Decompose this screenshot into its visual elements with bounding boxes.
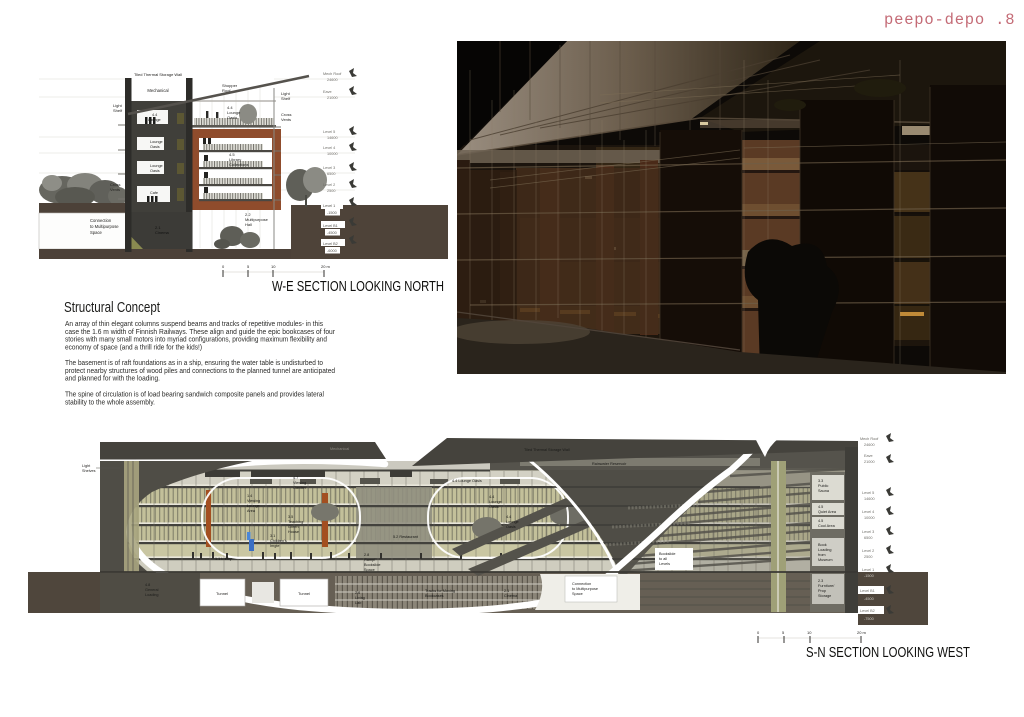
svg-text:-1500: -1500 (864, 574, 874, 578)
svg-text:2500: 2500 (864, 555, 872, 559)
svg-text:Garden: Garden (293, 486, 306, 490)
svg-text:-1500: -1500 (327, 211, 337, 215)
svg-text:10: 10 (271, 264, 276, 269)
svg-text:Cinema: Cinema (504, 594, 518, 598)
svg-text:Tunnel: Tunnel (216, 591, 228, 596)
svg-text:Connection: Connection (90, 218, 112, 223)
svg-text:Vents: Vents (281, 117, 291, 122)
svg-text:Lounge: Lounge (489, 500, 502, 504)
svg-text:Viewing: Viewing (247, 499, 260, 503)
svg-text:Connection: Connection (572, 582, 591, 586)
svg-text:4.8: 4.8 (145, 583, 150, 587)
svg-text:Collections: Collections (229, 162, 249, 167)
svg-text:Bookslide: Bookslide (659, 552, 675, 556)
svg-text:21000: 21000 (864, 460, 875, 464)
svg-text:Level 4: Level 4 (323, 146, 335, 150)
svg-text:Level B1: Level B1 (860, 589, 875, 593)
svg-text:0: 0 (757, 630, 760, 635)
svg-text:Level B2: Level B2 (860, 609, 875, 613)
svg-text:10000: 10000 (327, 152, 338, 156)
svg-text:to all: to all (659, 557, 667, 561)
svg-text:Loading: Loading (145, 593, 159, 597)
svg-text:Level 3: Level 3 (862, 530, 874, 534)
svg-text:Area: Area (247, 509, 256, 513)
svg-text:2500: 2500 (327, 189, 335, 193)
svg-text:peepo-depo .8: peepo-depo .8 (884, 11, 1015, 29)
svg-text:Cool Area: Cool Area (818, 524, 836, 528)
svg-text:5: 5 (782, 630, 785, 635)
svg-text:-4500: -4500 (327, 231, 337, 235)
svg-text:Level 4: Level 4 (862, 510, 874, 514)
svg-text:4.7: 4.7 (293, 476, 298, 480)
svg-text:Oasis: Oasis (227, 115, 237, 120)
svg-text:2.1: 2.1 (504, 589, 509, 593)
svg-text:Lounge: Lounge (506, 520, 519, 524)
svg-text:and planned for with the loadi: and planned for with the loading. (65, 376, 160, 383)
svg-text:Level 1: Level 1 (862, 568, 874, 572)
svg-text:4.4: 4.4 (152, 113, 157, 117)
svg-text:stability to the whole assembl: stability to the whole assembly. (65, 399, 155, 406)
svg-text:Teaching: Teaching (288, 520, 303, 524)
svg-text:4.5: 4.5 (818, 519, 823, 523)
svg-text:Ramp/: Ramp/ (364, 558, 376, 562)
svg-text:Structural Concept: Structural Concept (64, 299, 161, 316)
svg-text:0: 0 (222, 264, 225, 269)
svg-text:4.4: 4.4 (506, 515, 511, 519)
svg-text:Tunnel: Tunnel (298, 591, 310, 596)
svg-text:Quiet Area: Quiet Area (818, 510, 837, 514)
svg-text:to Multipurpose: to Multipurpose (90, 224, 119, 229)
svg-text:10000: 10000 (864, 516, 875, 520)
svg-text:Shelf: Shelf (281, 96, 291, 101)
svg-text:Oasis: Oasis (506, 525, 516, 529)
svg-text:24600: 24600 (864, 443, 875, 447)
svg-text:2.3: 2.3 (818, 579, 823, 583)
svg-text:Shelf: Shelf (113, 108, 123, 113)
svg-text:Tiled Thermal Storage Wall: Tiled Thermal Storage Wall (524, 448, 570, 452)
svg-text:Book: Book (818, 543, 827, 547)
svg-text:Level 3: Level 3 (323, 166, 335, 170)
svg-text:Vents: Vents (110, 187, 120, 192)
svg-text:2.6: 2.6 (355, 591, 360, 595)
svg-text:10: 10 (807, 630, 812, 635)
svg-text:Light: Light (82, 464, 91, 468)
svg-text:Oasis: Oasis (150, 145, 160, 149)
svg-text:Viewing: Viewing (293, 481, 306, 485)
svg-text:Level 5: Level 5 (862, 491, 874, 495)
svg-text:Space: Space (572, 592, 583, 596)
svg-text:Level 5: Level 5 (323, 130, 335, 134)
svg-text:6500: 6500 (864, 536, 872, 540)
svg-text:economy of space (and a thrill: economy of space (and a thrill ride for … (65, 344, 202, 351)
svg-text:case the 1.6 m width of Finnis: case the 1.6 m width of Finnish Railways… (65, 329, 336, 336)
svg-text:Furniture/: Furniture/ (818, 584, 835, 588)
svg-text:Loading: Loading (818, 548, 832, 552)
svg-text:Space: Space (90, 230, 103, 235)
svg-text:from: from (818, 553, 826, 557)
svg-text:Mechanical: Mechanical (330, 447, 349, 451)
svg-text:Level 1: Level 1 (323, 204, 335, 208)
svg-text:Public: Public (818, 484, 828, 488)
svg-text:Mechanical: Mechanical (147, 88, 168, 93)
svg-text:Living: Living (355, 596, 365, 600)
svg-text:Roof: Roof (222, 88, 231, 93)
svg-text:Space: Space (364, 568, 375, 572)
svg-text:Shelves: Shelves (82, 469, 96, 473)
svg-text:21000: 21000 (327, 96, 338, 100)
svg-text:Bookslide: Bookslide (364, 563, 380, 567)
svg-text:Mech Roof: Mech Roof (860, 437, 879, 441)
svg-text:Children's: Children's (270, 539, 287, 543)
svg-text:-4500: -4500 (864, 597, 874, 601)
svg-text:4.5: 4.5 (818, 505, 823, 509)
svg-text:Lounge: Lounge (150, 140, 163, 144)
svg-text:protect nearby structures of w: protect nearby structures of wood piles … (65, 368, 335, 375)
svg-text:Level B2: Level B2 (323, 242, 338, 246)
svg-text:Sauna: Sauna (818, 489, 830, 493)
svg-text:Cinema: Cinema (155, 230, 170, 235)
svg-text:House: House (288, 530, 299, 534)
svg-text:Lounge: Lounge (150, 164, 163, 168)
svg-text:S-N SECTION LOOKING WEST: S-N SECTION LOOKING WEST (806, 645, 970, 661)
svg-text:Storage: Storage (818, 594, 831, 598)
svg-text:14600: 14600 (327, 136, 338, 140)
svg-text:W-E SECTION LOOKING NORTH: W-E SECTION LOOKING NORTH (272, 279, 444, 295)
svg-text:3.1: 3.1 (270, 534, 275, 538)
svg-text:Mech Roof: Mech Roof (323, 72, 342, 76)
svg-text:Rainwater Reservoir: Rainwater Reservoir (592, 462, 627, 466)
svg-text:Bookcases: Bookcases (425, 594, 444, 598)
svg-text:The spine of circulation is of: The spine of circulation is of load bear… (65, 392, 324, 399)
svg-text:2.8: 2.8 (364, 553, 369, 557)
svg-text:6500: 6500 (327, 172, 335, 176)
svg-text:Levels: Levels (659, 562, 670, 566)
svg-text:Level 2: Level 2 (862, 549, 874, 553)
svg-text:General: General (145, 588, 159, 592)
svg-text:5: 5 (247, 264, 250, 269)
svg-text:4.4 Lounge Oasis: 4.4 Lounge Oasis (452, 479, 482, 483)
svg-text:-7500: -7500 (864, 617, 874, 621)
svg-text:4.4: 4.4 (489, 495, 494, 499)
svg-text:20 m: 20 m (321, 264, 331, 269)
svg-text:Oasis: Oasis (150, 169, 160, 173)
svg-text:Green: Green (288, 525, 299, 529)
svg-text:The basement is of raft founda: The basement is of raft foundations as i… (65, 360, 323, 367)
svg-text:Lounge: Lounge (247, 504, 260, 508)
svg-text:-6000: -6000 (327, 249, 337, 253)
svg-text:Cafe: Cafe (150, 191, 158, 195)
svg-text:1.1 Lobby: 1.1 Lobby (215, 557, 232, 561)
svg-text:20 m: 20 m (857, 630, 867, 635)
svg-text:24600: 24600 (327, 78, 338, 82)
svg-text:Tracks for Moving: Tracks for Moving (425, 589, 455, 593)
svg-text:to Multipurpose: to Multipurpose (572, 587, 598, 591)
svg-text:Tiled Thermal Storage Wall: Tiled Thermal Storage Wall (134, 72, 182, 77)
svg-text:An array of thin elegant colum: An array of thin elegant columns suspend… (65, 321, 323, 328)
svg-text:Eave: Eave (323, 90, 332, 94)
svg-text:Hall: Hall (245, 222, 252, 227)
svg-text:5.2 Restaurant: 5.2 Restaurant (393, 535, 419, 539)
svg-text:Prop: Prop (818, 589, 826, 593)
svg-text:Oasis: Oasis (489, 505, 499, 509)
svg-text:Imgte: Imgte (270, 544, 280, 548)
svg-text:1.4: 1.4 (247, 494, 252, 498)
svg-text:3.5: 3.5 (288, 515, 293, 519)
svg-text:3.3: 3.3 (818, 479, 823, 483)
svg-text:Lab: Lab (355, 601, 361, 605)
svg-text:14600: 14600 (864, 497, 875, 501)
svg-text:Eave: Eave (864, 454, 873, 458)
svg-text:Level B1: Level B1 (323, 224, 338, 228)
svg-text:Museum: Museum (818, 558, 833, 562)
svg-text:Level 2: Level 2 (323, 183, 335, 187)
svg-text:stories with many small motors: stories with many small motors into myri… (65, 337, 327, 344)
